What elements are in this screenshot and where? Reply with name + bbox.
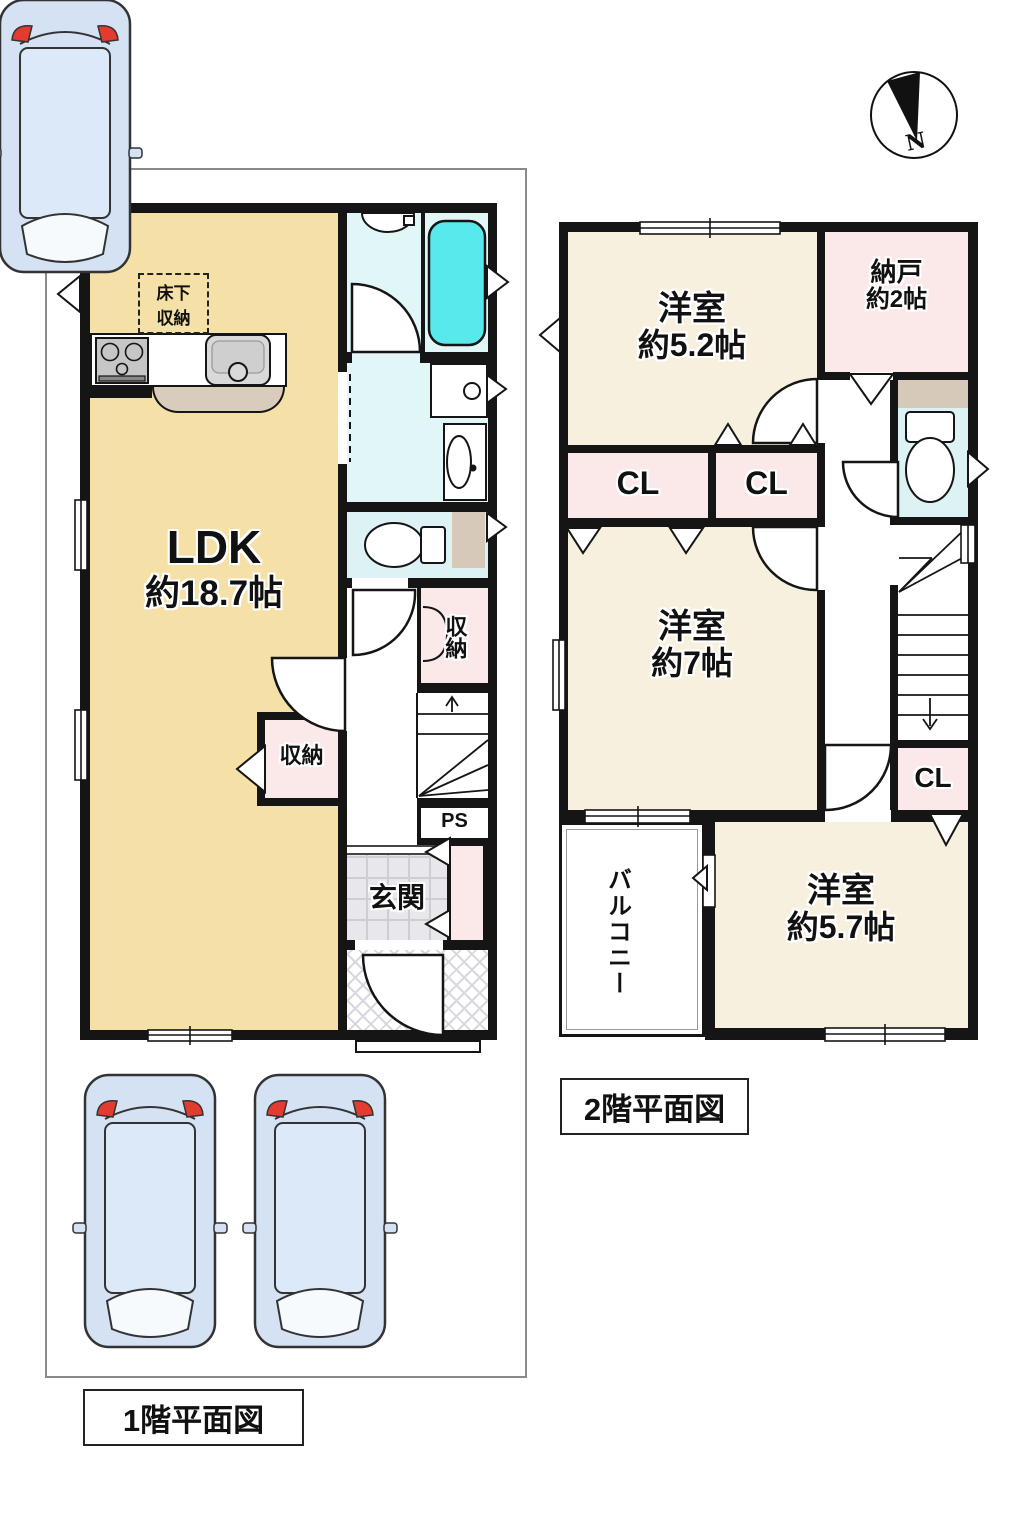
hallway-2f [825,380,890,810]
storeroom-size: 約2帖 [825,287,968,314]
ldk-label: LDK 約18.7帖 [114,522,314,613]
closet3-label: CL [898,762,968,793]
opening [355,940,443,950]
hallway-1f [347,588,417,845]
bath-divider-wall [421,213,425,352]
room-bathtub [425,213,488,352]
kitchen-wall-stub [90,387,152,398]
opening [850,372,893,380]
ldk-name: LDK [114,522,314,574]
underfloor-storage-box: 床下 収納 [138,273,209,334]
ps-label: PS [421,810,488,832]
kitchen-counter-overhang [152,387,285,413]
staircase-1f-area [417,693,488,798]
opening [817,527,825,590]
bedroom57-label: 洋室 約5.7帖 [716,872,966,946]
opening [352,578,408,588]
kitchen-counter [90,333,287,387]
underfloor-storage-line1: 床下 [157,279,191,304]
bedroom7-size: 約7帖 [592,646,792,682]
toilet-2f-counter [898,380,968,408]
bedroom7-label: 洋室 約7帖 [592,608,792,682]
opening [817,380,825,443]
staircase-2f-area [898,525,968,740]
opening [890,525,898,585]
toilet-1f-counter [452,512,485,568]
floor1-title: 1階平面図 [83,1389,304,1446]
closet1-label: CL [568,466,708,502]
closet2-label: CL [716,466,817,502]
storage-hall-label: 収納 [422,598,486,676]
bedroom52-size: 約5.2帖 [592,328,792,364]
entrance-label: 玄関 [347,882,447,913]
storeroom-name: 納戸 [825,258,968,287]
north-label: N [900,127,933,157]
balcony-label: バルコニー [588,852,644,1012]
room-washroom [347,363,488,502]
porch [347,950,488,1030]
ldk-size: 約18.7帖 [114,574,314,613]
bedroom52-name: 洋室 [592,290,792,328]
floor2-title-text: 2階平面図 [584,1084,725,1129]
opening [825,810,891,822]
entrance-step-band [347,845,447,855]
floor2-title: 2階平面図 [560,1078,749,1135]
bedroom7-name: 洋室 [592,608,792,646]
porch-step [355,1040,481,1053]
bedroom57-name: 洋室 [716,872,966,910]
room-bathroom-hall [347,213,421,352]
opening [338,372,347,464]
room-toilet-2f [898,408,968,517]
floor1-title-text: 1階平面図 [123,1395,264,1440]
opening [890,465,898,517]
opening [352,352,420,363]
opening [338,658,347,731]
bedroom52-label: 洋室 約5.2帖 [592,290,792,364]
storage-ldk-label: 収納 [265,744,338,769]
storeroom-label: 納戸 約2帖 [825,258,968,314]
entrance-side-strip [451,846,483,940]
bedroom57-size: 約5.7帖 [716,910,966,946]
underfloor-storage-line2: 収納 [157,304,191,329]
floorplan-canvas: LDK 約18.7帖 床下 収納 収納 収納 PS 玄関 洋室 約5.2帖 納戸… [0,0,1034,1513]
